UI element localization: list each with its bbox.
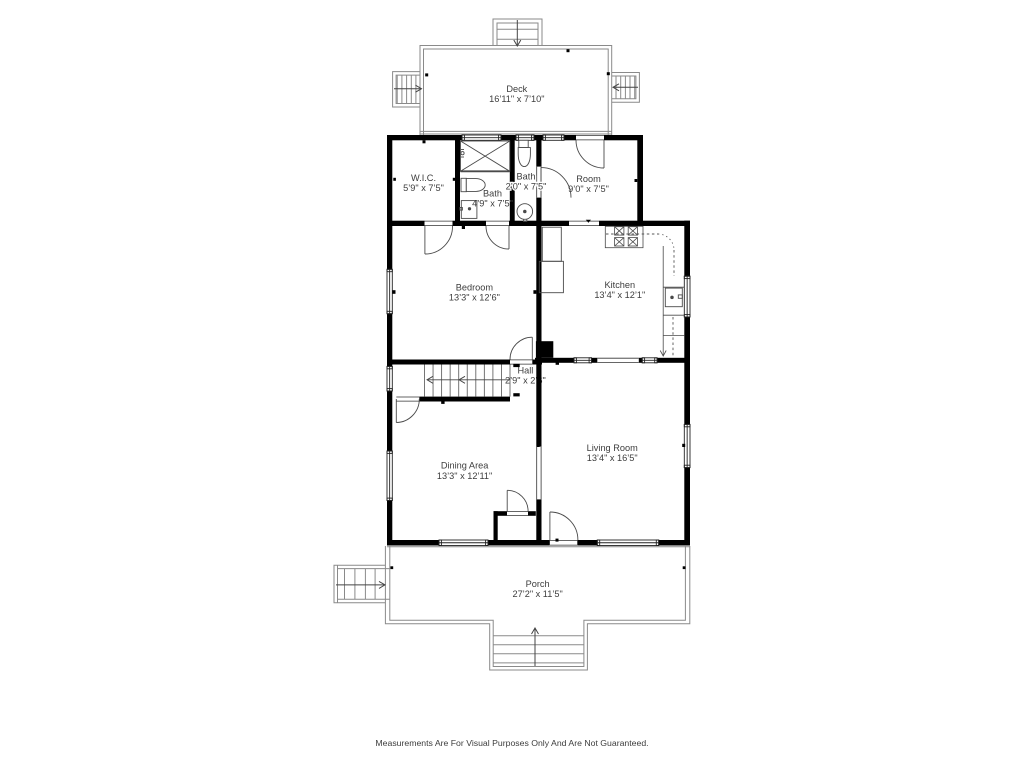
- svg-text:Hall: Hall: [517, 366, 533, 376]
- svg-text:Porch: Porch: [526, 579, 550, 589]
- svg-text:13’3" x 12’6": 13’3" x 12’6": [449, 293, 500, 303]
- svg-text:W.I.C.: W.I.C.: [411, 173, 436, 183]
- svg-text:Deck: Deck: [506, 84, 527, 94]
- svg-text:13’3" x 12’11": 13’3" x 12’11": [437, 471, 492, 481]
- svg-text:Living Room: Living Room: [587, 443, 638, 453]
- svg-text:27’2" x 11’5": 27’2" x 11’5": [512, 589, 562, 599]
- svg-text:4’9" x 7’5": 4’9" x 7’5": [472, 199, 513, 209]
- svg-text:2’0" x 7’5": 2’0" x 7’5": [506, 182, 547, 192]
- svg-text:13’4" x 12’1": 13’4" x 12’1": [594, 290, 645, 300]
- svg-text:5’9" x 7’5": 5’9" x 7’5": [403, 183, 444, 193]
- svg-text:Dining Area: Dining Area: [441, 461, 489, 471]
- svg-text:Bedroom: Bedroom: [456, 283, 494, 293]
- svg-text:Room: Room: [576, 174, 601, 184]
- svg-text:16’11" x 7’10": 16’11" x 7’10": [489, 94, 544, 104]
- svg-text:Bath: Bath: [483, 189, 502, 199]
- svg-text:Kitchen: Kitchen: [604, 280, 635, 290]
- svg-text:13’4" x 16’5": 13’4" x 16’5": [587, 453, 638, 463]
- svg-text:Measurements Are For Visual Pu: Measurements Are For Visual Purposes Onl…: [375, 738, 648, 748]
- svg-text:Bath: Bath: [517, 172, 536, 182]
- svg-text:9’0" x 7’5": 9’0" x 7’5": [568, 184, 609, 194]
